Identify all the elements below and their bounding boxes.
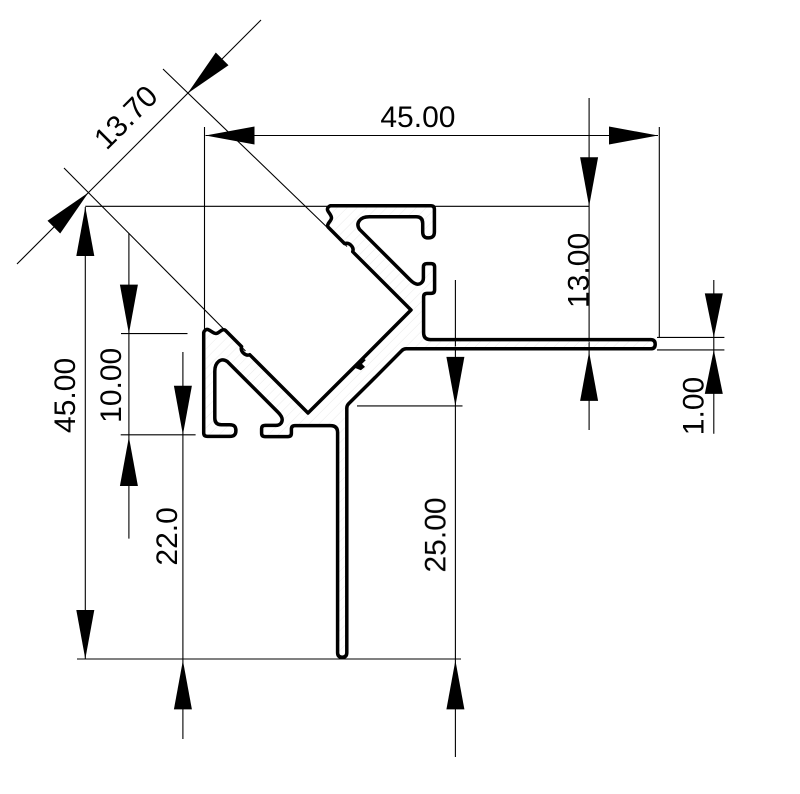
svg-text:10.00: 10.00 — [95, 348, 128, 423]
svg-text:45.00: 45.00 — [380, 101, 455, 134]
svg-text:1.00: 1.00 — [677, 377, 710, 435]
svg-text:25.00: 25.00 — [419, 497, 452, 572]
svg-text:13.00: 13.00 — [563, 233, 596, 308]
svg-text:45.00: 45.00 — [49, 358, 82, 433]
svg-text:22.0: 22.0 — [151, 507, 184, 565]
